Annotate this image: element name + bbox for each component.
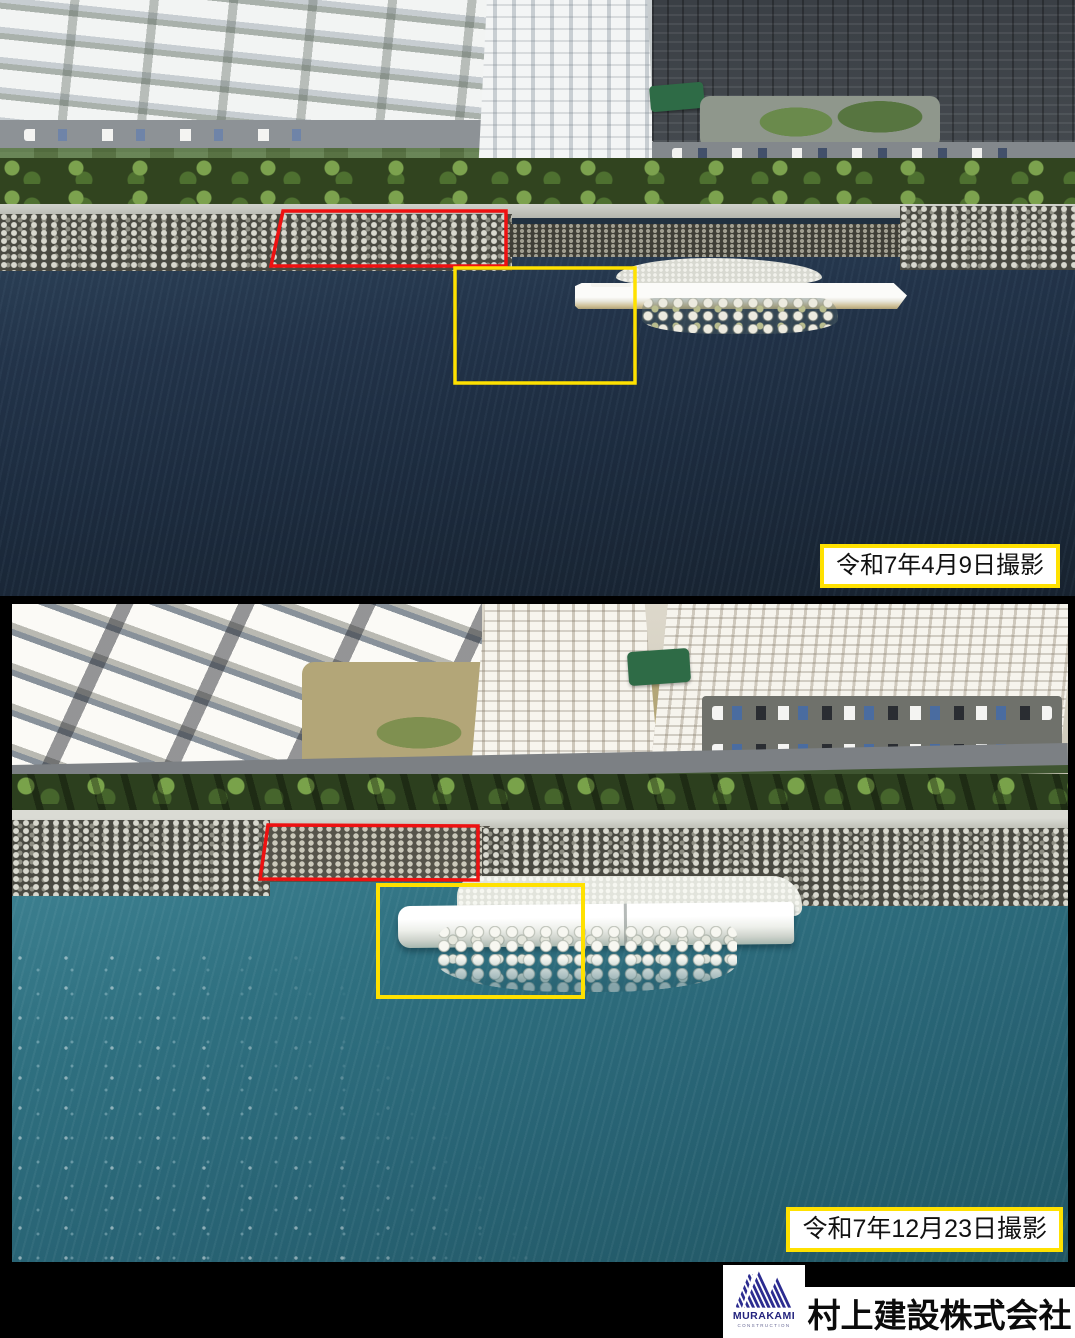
company-name: 村上建設株式会社 (808, 1289, 1072, 1337)
breakwater-tetrapods (642, 298, 838, 334)
new-tetrapods (437, 926, 737, 992)
photo-april: 令和7年4月9日撮影 (0, 0, 1075, 596)
green-roof-pavilion (649, 82, 705, 113)
apartment-rows (0, 0, 492, 138)
sun-sparkles (12, 952, 532, 1262)
green-roof-pavilion (627, 648, 691, 686)
tetrapod-band-right (900, 206, 1075, 270)
company-name-banner: 村上建設株式会社 (804, 1287, 1075, 1338)
date-label-april: 令和7年4月9日撮影 (820, 544, 1060, 588)
murakami-logo: MURAKAMI CONSTRUCTION (723, 1265, 805, 1338)
rubble-slope (262, 826, 490, 882)
logo-wordmark: MURAKAMI (733, 1310, 795, 1322)
logo-subtext: CONSTRUCTION (737, 1323, 790, 1328)
tetrapod-band-left (0, 214, 512, 271)
murakami-m-icon (732, 1269, 796, 1309)
date-label-december: 令和7年12月23日撮影 (786, 1207, 1063, 1252)
highrise-tower (478, 0, 656, 174)
sea-april (0, 238, 1075, 596)
rubble-band (505, 224, 917, 257)
tetrapod-band-left (12, 820, 270, 896)
report-page: 令和7年4月9日撮影 令和7年12月23日撮影 (0, 0, 1075, 1338)
park-area (700, 96, 940, 148)
photo-december: 令和7年12月23日撮影 (12, 604, 1068, 1262)
